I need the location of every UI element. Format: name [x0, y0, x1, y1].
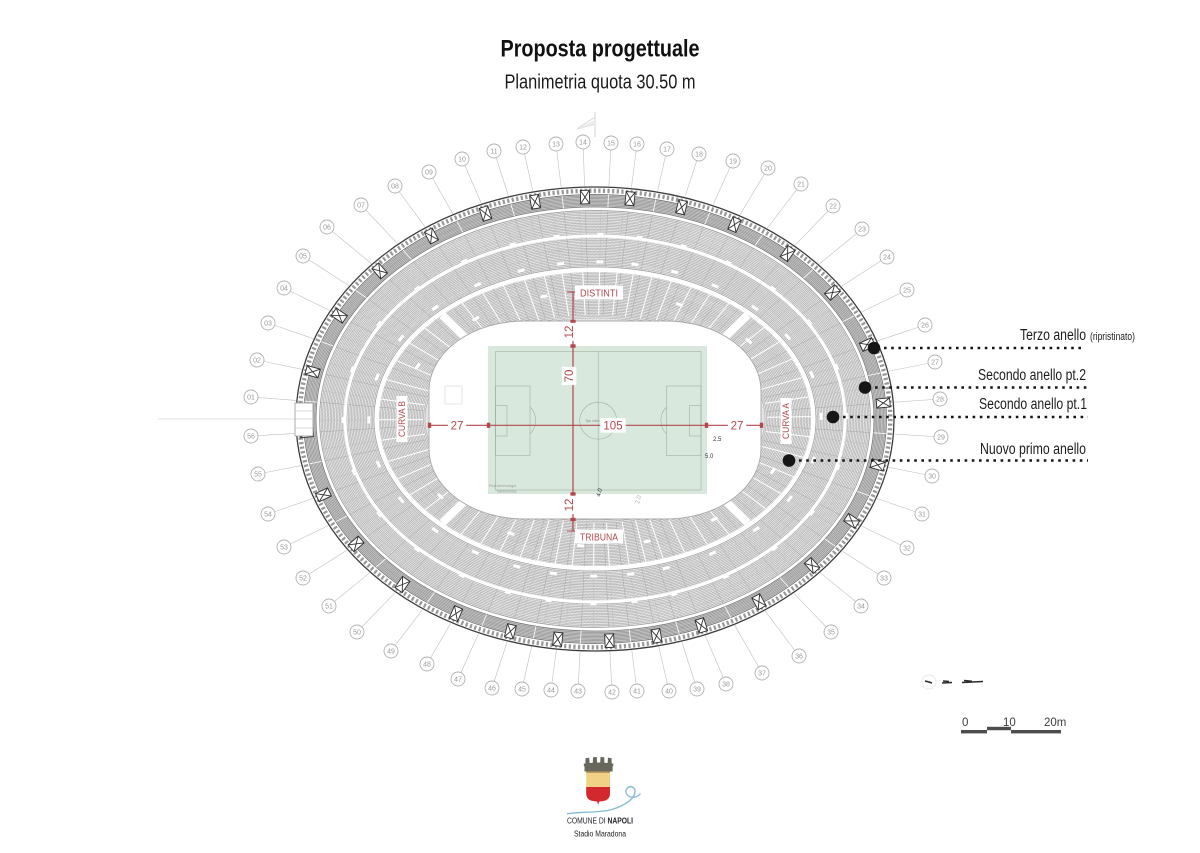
svg-text:21: 21	[797, 181, 805, 188]
svg-text:19: 19	[729, 158, 737, 165]
svg-text:105: 105	[603, 420, 622, 432]
svg-text:50: 50	[353, 629, 361, 636]
svg-text:14: 14	[579, 139, 587, 146]
svg-text:Secondo anello pt.2: Secondo anello pt.2	[978, 367, 1086, 384]
svg-text:43: 43	[574, 688, 582, 695]
svg-text:31: 31	[918, 511, 926, 518]
svg-text:36: 36	[795, 653, 803, 660]
svg-text:15: 15	[607, 140, 615, 147]
svg-text:0: 0	[962, 717, 968, 729]
svg-text:05: 05	[299, 253, 307, 260]
svg-text:46: 46	[488, 685, 496, 692]
svg-text:42: 42	[608, 689, 616, 696]
svg-text:38: 38	[722, 681, 730, 688]
svg-text:48: 48	[423, 661, 431, 668]
svg-text:40: 40	[665, 688, 673, 695]
svg-text:52: 52	[299, 575, 307, 582]
svg-text:11: 11	[490, 148, 497, 155]
svg-text:39: 39	[693, 686, 701, 693]
svg-text:CURVA A: CURVA A	[781, 403, 791, 439]
svg-text:CURVA B: CURVA B	[397, 401, 407, 437]
svg-text:03: 03	[264, 320, 272, 327]
svg-text:Secondo anello pt.1: Secondo anello pt.1	[979, 396, 1087, 413]
svg-text:30: 30	[928, 473, 936, 480]
svg-text:35: 35	[827, 629, 835, 636]
svg-text:Nanberyneta: Nanberyneta	[497, 490, 517, 494]
svg-text:37: 37	[758, 670, 766, 677]
svg-text:27: 27	[731, 420, 744, 432]
svg-text:33: 33	[880, 575, 888, 582]
svg-text:55: 55	[254, 471, 262, 478]
svg-text:Stadio Maradona: Stadio Maradona	[574, 830, 626, 839]
svg-text:24: 24	[883, 254, 891, 261]
svg-text:17: 17	[663, 146, 671, 153]
svg-text:10: 10	[458, 156, 466, 163]
svg-text:41: 41	[633, 688, 641, 695]
svg-text:51: 51	[325, 603, 333, 610]
svg-text:10: 10	[1003, 717, 1016, 729]
svg-text:2.5: 2.5	[713, 437, 722, 443]
svg-text:25: 25	[903, 287, 911, 294]
svg-text:09: 09	[425, 169, 433, 176]
svg-text:47: 47	[454, 676, 462, 683]
svg-text:(ripristinato): (ripristinato)	[1090, 331, 1135, 343]
svg-text:27: 27	[931, 359, 939, 366]
svg-text:29: 29	[937, 434, 945, 441]
svg-text:44: 44	[547, 687, 555, 694]
svg-text:13: 13	[552, 141, 560, 148]
svg-text:45: 45	[518, 686, 526, 693]
svg-text:04: 04	[280, 285, 288, 292]
svg-text:12: 12	[519, 144, 527, 151]
svg-text:54: 54	[264, 511, 272, 518]
svg-text:20: 20	[764, 165, 772, 172]
svg-text:49: 49	[387, 648, 395, 655]
svg-text:22: 22	[829, 203, 837, 210]
svg-text:COMUNE DI NAPOLI: COMUNE DI NAPOLI	[567, 817, 633, 826]
svg-text:28: 28	[936, 396, 944, 403]
svg-text:20m: 20m	[1044, 717, 1066, 729]
svg-text:26: 26	[921, 322, 929, 329]
svg-text:Terzo anello: Terzo anello	[1020, 327, 1086, 344]
svg-text:06: 06	[323, 224, 331, 231]
svg-text:TRIBUNA: TRIBUNA	[580, 533, 618, 544]
svg-text:Proposta progettuale: Proposta progettuale	[501, 36, 700, 63]
svg-text:18: 18	[695, 151, 703, 158]
svg-text:02: 02	[253, 357, 261, 364]
svg-text:5.0: 5.0	[705, 454, 714, 460]
svg-text:01: 01	[247, 394, 255, 401]
svg-text:53: 53	[280, 544, 288, 551]
svg-text:23: 23	[858, 226, 866, 233]
svg-text:27: 27	[451, 420, 464, 432]
svg-text:56: 56	[247, 433, 255, 440]
svg-text:12: 12	[564, 326, 576, 339]
svg-text:Nuovo primo anello: Nuovo primo anello	[980, 441, 1086, 458]
svg-text:16: 16	[633, 141, 641, 148]
svg-text:34: 34	[857, 603, 865, 610]
svg-text:70: 70	[564, 370, 576, 383]
svg-text:07: 07	[357, 202, 365, 209]
svg-text:Pista terminologia: Pista terminologia	[489, 484, 516, 488]
svg-text:32: 32	[903, 545, 911, 552]
svg-text:Planimetria quota 30.50 m: Planimetria quota 30.50 m	[505, 71, 696, 94]
svg-text:DISTINTI: DISTINTI	[580, 289, 618, 300]
svg-text:08: 08	[391, 183, 399, 190]
svg-text:12: 12	[564, 499, 576, 512]
